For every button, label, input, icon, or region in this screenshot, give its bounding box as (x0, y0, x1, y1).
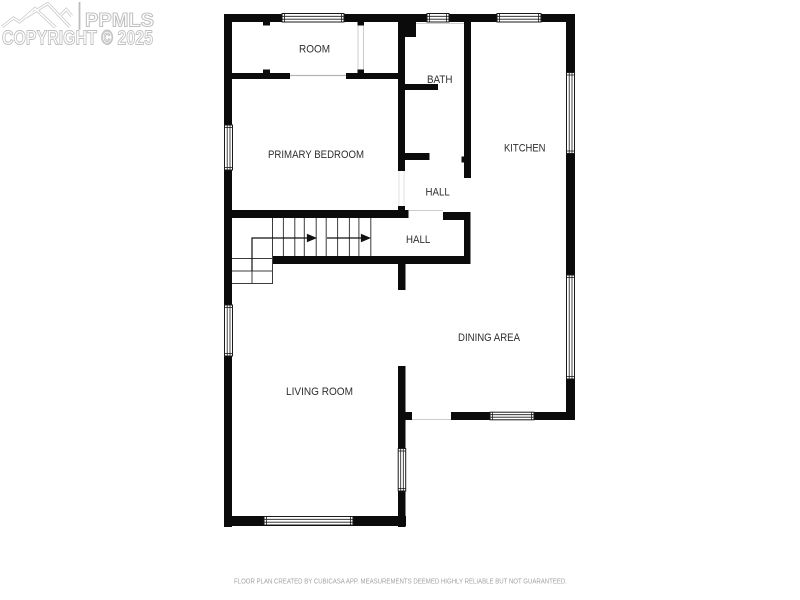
svg-text:BATH: BATH (427, 74, 453, 86)
svg-text:PRIMARY BEDROOM: PRIMARY BEDROOM (268, 149, 364, 161)
svg-text:HALL: HALL (406, 234, 430, 246)
svg-text:ROOM: ROOM (299, 44, 330, 56)
svg-text:LIVING ROOM: LIVING ROOM (286, 386, 353, 398)
svg-text:FLOOR PLAN CREATED BY CUBICASA: FLOOR PLAN CREATED BY CUBICASA APP. MEAS… (234, 579, 567, 586)
svg-text:KITCHEN: KITCHEN (504, 143, 546, 155)
svg-text:DINING AREA: DINING AREA (458, 332, 521, 344)
svg-text:HALL: HALL (426, 187, 450, 199)
svg-text:COPYRIGHT © 2025: COPYRIGHT © 2025 (2, 27, 153, 50)
